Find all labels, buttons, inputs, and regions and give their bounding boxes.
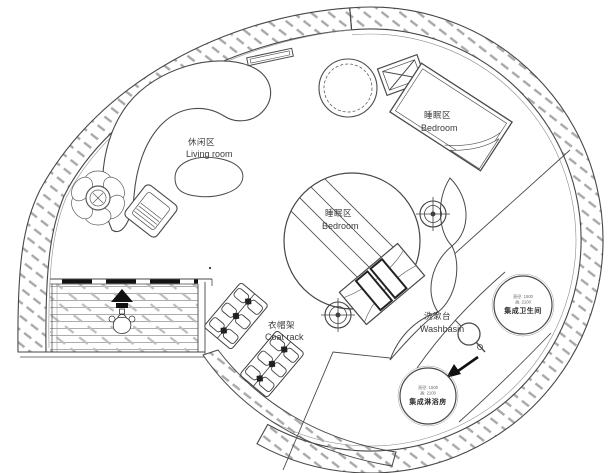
person-hand-left: [109, 316, 115, 322]
reference-dot: [209, 267, 211, 269]
shower-pod-height: 高: 2100: [420, 390, 437, 397]
floorplan-drawing: 直径: 1500 高: 2100 集成卫生间 直径: 1500 高: 2100 …: [0, 0, 611, 473]
label-bedroom-upper-zh: 睡眠区: [424, 110, 451, 120]
kidney-coffee-table: [175, 157, 243, 196]
label-living-room-en: Living room: [186, 149, 233, 159]
label-washbasin-zh: 洗漱台: [424, 311, 451, 321]
entry-arrow-base: [116, 303, 128, 308]
bathroom-pod-height: 高: 2100: [515, 299, 532, 306]
label-bedroom-center-en: Bedroom: [322, 221, 359, 231]
label-bedroom-center-zh: 睡眠区: [325, 208, 352, 218]
shower-pod-name: 集成淋浴房: [408, 397, 447, 406]
label-washbasin-en: Washbasin: [420, 324, 464, 334]
bathroom-pod: 直径: 1500 高: 2100 集成卫生间: [492, 274, 554, 336]
person-body: [113, 317, 131, 333]
label-living-room-zh: 休闲区: [188, 137, 215, 147]
coat-rack-1: [204, 282, 269, 350]
divider-upper-right: [450, 150, 570, 258]
shower-pod-diameter: 直径: 1500: [418, 384, 439, 390]
label-bedroom-upper-en: Bedroom: [421, 123, 458, 133]
label-coat-rack-en: Coat rack: [265, 332, 304, 342]
curved-sofa: [103, 61, 271, 232]
bathroom-pod-diameter: 直径: 1500: [513, 293, 534, 299]
label-coat-rack-zh: 衣帽架: [268, 320, 295, 330]
upper-bedroom-area: [319, 55, 512, 171]
flow-arrow-icon: [446, 357, 478, 378]
floorplan-canvas: 直径: 1500 高: 2100 集成卫生间 直径: 1500 高: 2100 …: [0, 0, 611, 473]
bathroom-pod-name: 集成卫生间: [503, 306, 542, 315]
round-table: [319, 59, 377, 117]
person-hand-right: [129, 316, 135, 322]
